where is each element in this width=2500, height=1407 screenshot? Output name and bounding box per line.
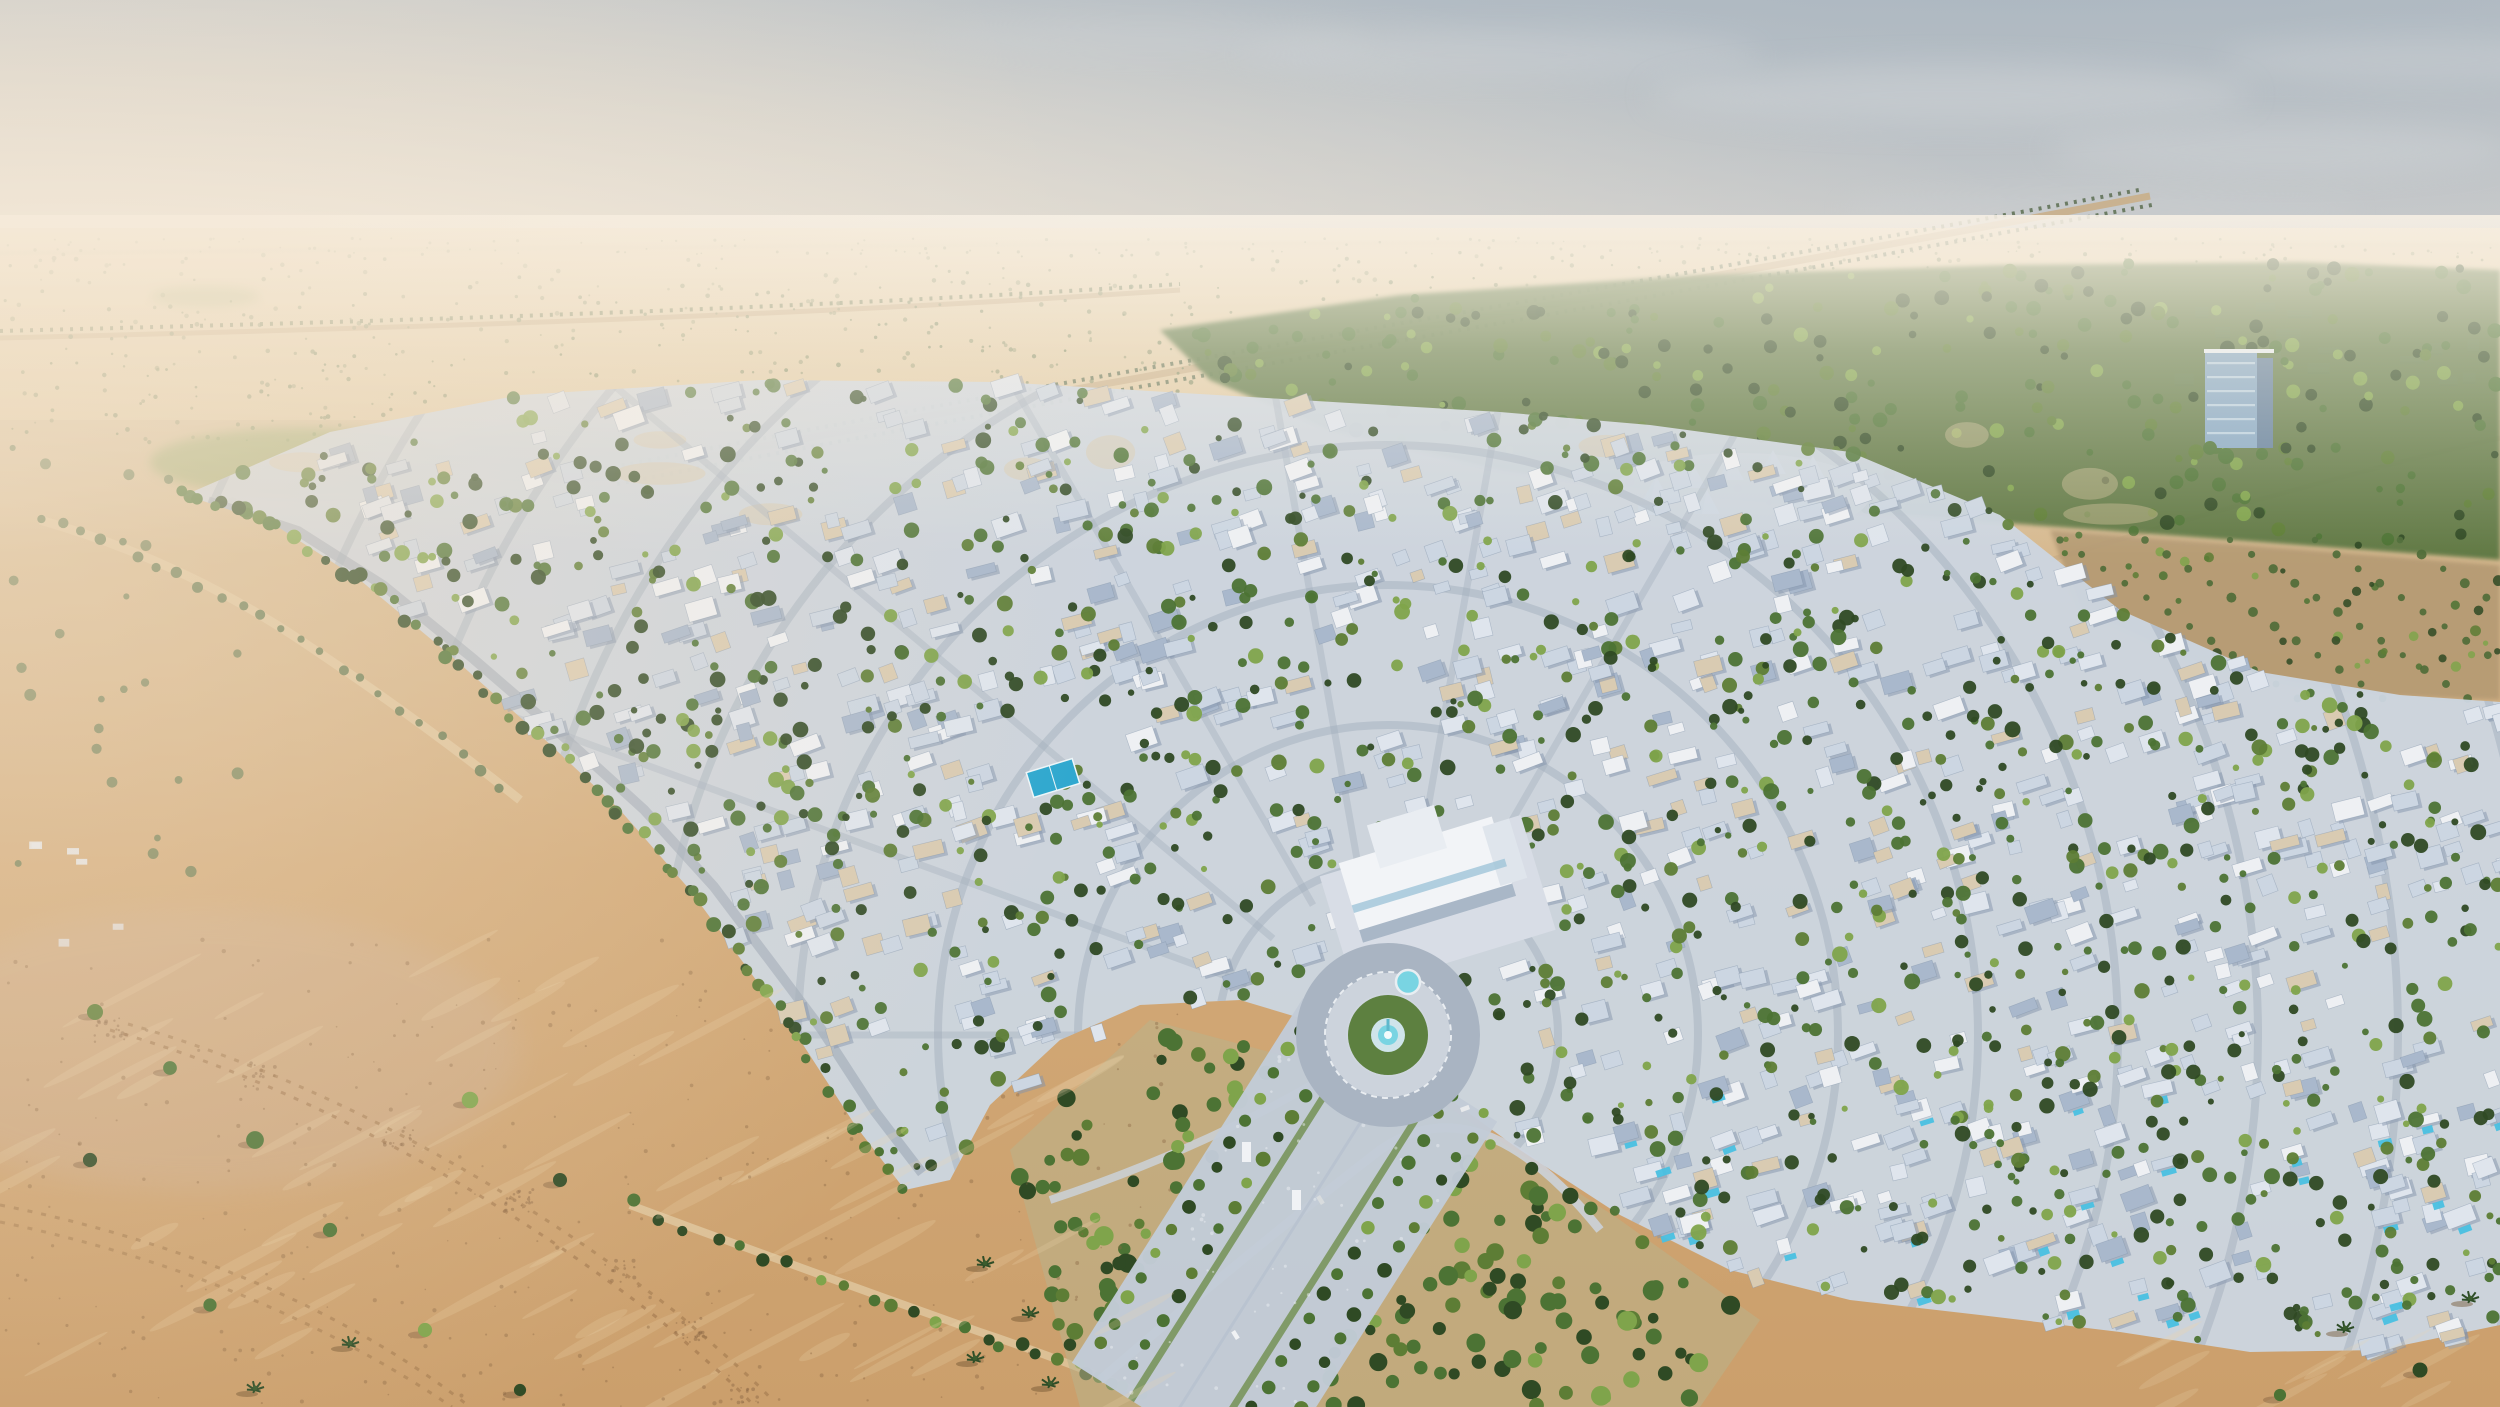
- warm-overlay: [0, 0, 1500, 1407]
- aerial-render: [0, 0, 2500, 1407]
